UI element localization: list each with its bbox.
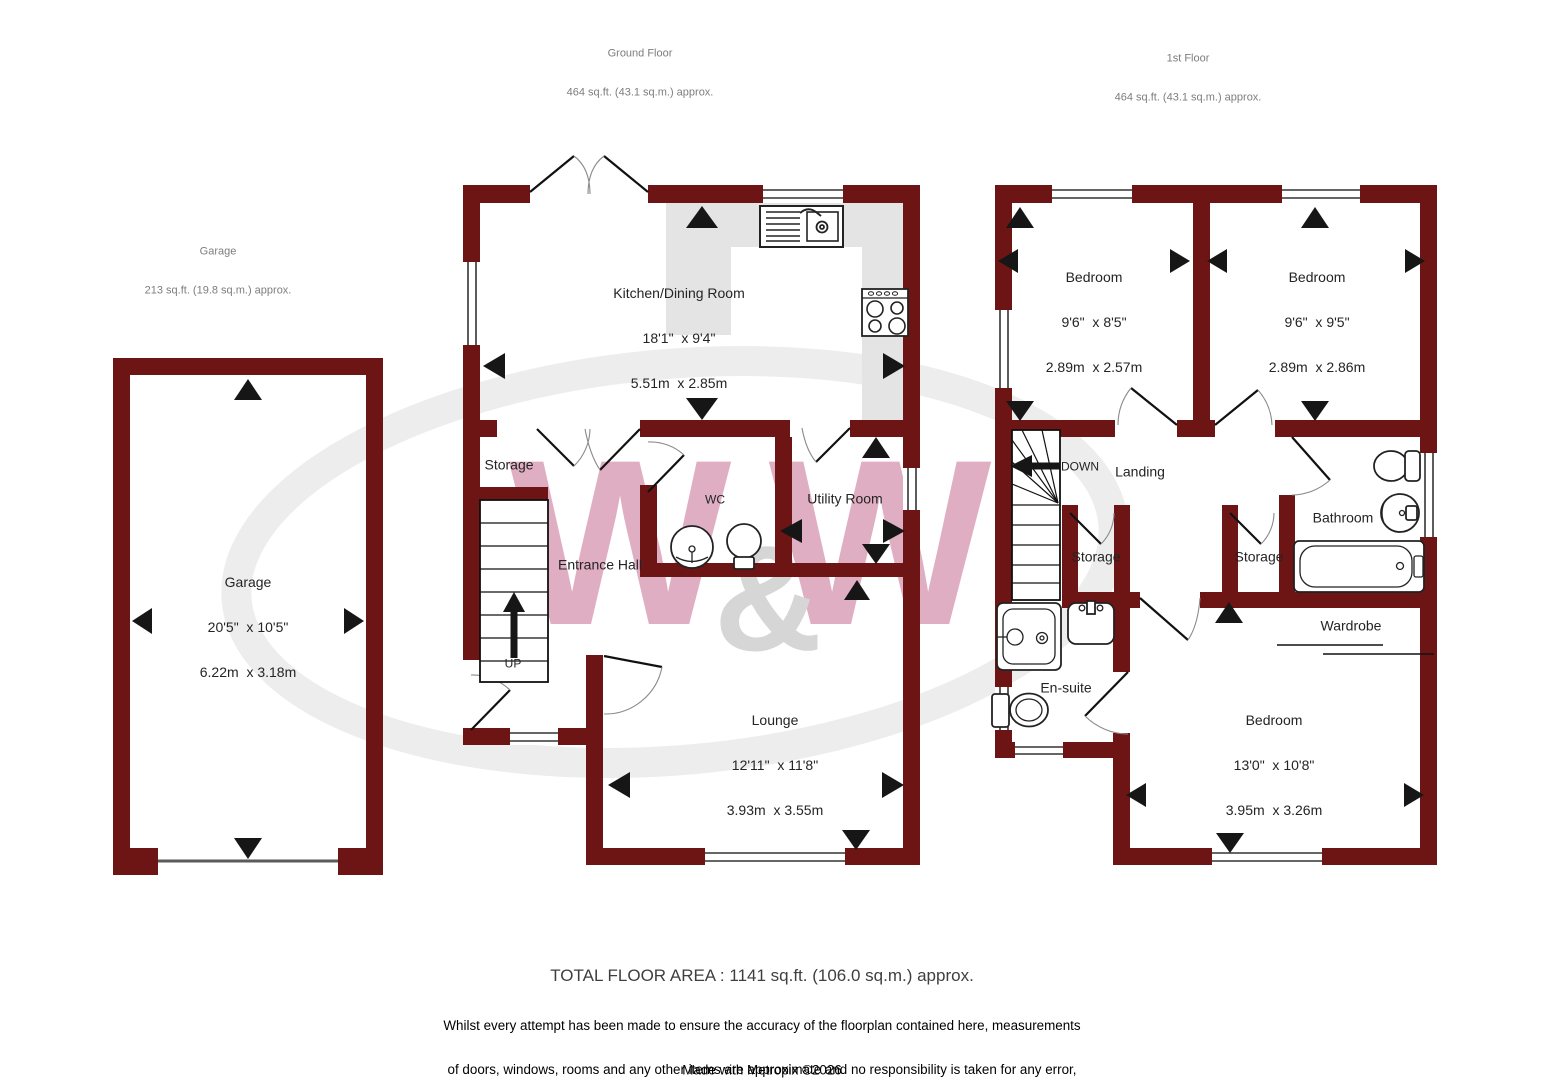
window (1420, 453, 1437, 537)
floorplan: W W & (0, 0, 1553, 1080)
bath-icon (1294, 541, 1424, 592)
label-utility-room: Utility Room (807, 492, 882, 507)
room-dims-imperial: 12'11" x 11'8" (727, 758, 824, 773)
ground-floor-area: 464 sq.ft. (43.1 sq.m.) approx. (567, 87, 714, 100)
room-dims-metric: 2.89m x 2.57m (1046, 360, 1143, 375)
room-label-lounge: Lounge 12'11" x 11'8" 3.93m x 3.55m (727, 683, 824, 833)
room-dims-metric: 3.93m x 3.55m (727, 803, 824, 818)
floorplan-drawing: W W & (0, 0, 1553, 1080)
room-label-bedroom3: Bedroom 13'0" x 10'8" 3.95m x 3.26m (1226, 683, 1323, 833)
room-dims-imperial: 9'6" x 8'5" (1046, 315, 1143, 330)
room-name: Bedroom (1269, 270, 1366, 285)
room-dims-imperial: 18'1" x 9'4" (613, 331, 745, 346)
room-dims-imperial: 20'5" x 10'5" (200, 620, 297, 635)
garage-title: Garage (145, 246, 292, 259)
ground-floor-header: Ground Floor 464 sq.ft. (43.1 sq.m.) app… (567, 22, 714, 113)
kitchen-sink-icon (760, 206, 843, 247)
wardrobe-rail-icon (1277, 645, 1434, 654)
label-storage-gf: Storage (484, 458, 533, 473)
shower-icon (997, 603, 1061, 670)
room-name: Garage (200, 575, 297, 590)
room-label-garage: Garage 20'5" x 10'5" 6.22m x 3.18m (200, 545, 297, 695)
room-name: Bedroom (1226, 713, 1323, 728)
garage-area: 213 sq.ft. (19.8 sq.m.) approx. (145, 285, 292, 298)
label-storage-1f-left: Storage (1071, 550, 1120, 565)
room-dims-metric: 5.51m x 2.85m (613, 376, 745, 391)
room-dims-metric: 2.89m x 2.86m (1269, 360, 1366, 375)
room-name: Lounge (727, 713, 824, 728)
label-landing: Landing (1115, 465, 1165, 480)
total-floor-area: TOTAL FLOOR AREA : 1141 sq.ft. (106.0 sq… (550, 966, 974, 986)
window (995, 310, 1012, 388)
window (705, 848, 845, 865)
label-entrance-hall: Entrance Hall (558, 558, 642, 573)
first-floor-header: 1st Floor 464 sq.ft. (43.1 sq.m.) approx… (1115, 27, 1262, 118)
window (510, 728, 558, 745)
window (763, 185, 843, 203)
room-dims-metric: 3.95m x 3.26m (1226, 803, 1323, 818)
garage-header: Garage 213 sq.ft. (19.8 sq.m.) approx. (145, 220, 292, 311)
room-dims-imperial: 9'6" x 9'5" (1269, 315, 1366, 330)
room-label-bedroom2: Bedroom 9'6" x 9'5" 2.89m x 2.86m (1269, 240, 1366, 390)
ensuite-basin-icon (1068, 601, 1114, 644)
room-label-bedroom1: Bedroom 9'6" x 8'5" 2.89m x 2.57m (1046, 240, 1143, 390)
label-wardrobe: Wardrobe (1321, 619, 1382, 634)
disclaimer-line: Whilst every attempt has been made to en… (440, 1019, 1084, 1034)
label-wc: WC (705, 493, 725, 508)
window (1282, 185, 1360, 203)
label-ensuite: En-suite (1040, 681, 1091, 696)
window (903, 468, 920, 510)
bathroom-basin-icon (1381, 494, 1419, 532)
first-floor-area: 464 sq.ft. (43.1 sq.m.) approx. (1115, 92, 1262, 105)
staircase-up (480, 500, 548, 682)
hob-icon (862, 289, 908, 336)
bathroom-toilet-icon (1374, 451, 1420, 481)
label-up: UP (505, 657, 522, 672)
label-storage-1f-right: Storage (1234, 550, 1283, 565)
room-dims-metric: 6.22m x 3.18m (200, 665, 297, 680)
room-name: Kitchen/Dining Room (613, 286, 745, 301)
room-label-kitchen: Kitchen/Dining Room 18'1" x 9'4" 5.51m x… (613, 256, 745, 406)
first-floor-title: 1st Floor (1115, 53, 1262, 66)
room-name: Bedroom (1046, 270, 1143, 285)
credit: Made with Metropix ©2026 (682, 1063, 841, 1078)
ensuite-toilet-icon (992, 694, 1048, 728)
label-down: DOWN (1061, 460, 1099, 475)
room-dims-imperial: 13'0" x 10'8" (1226, 758, 1323, 773)
wc-basin-icon (671, 526, 713, 568)
window (1015, 742, 1063, 758)
window (463, 262, 480, 345)
window (1052, 185, 1132, 203)
staircase-down (1010, 430, 1060, 600)
label-bathroom: Bathroom (1313, 511, 1374, 526)
ground-floor-title: Ground Floor (567, 48, 714, 61)
